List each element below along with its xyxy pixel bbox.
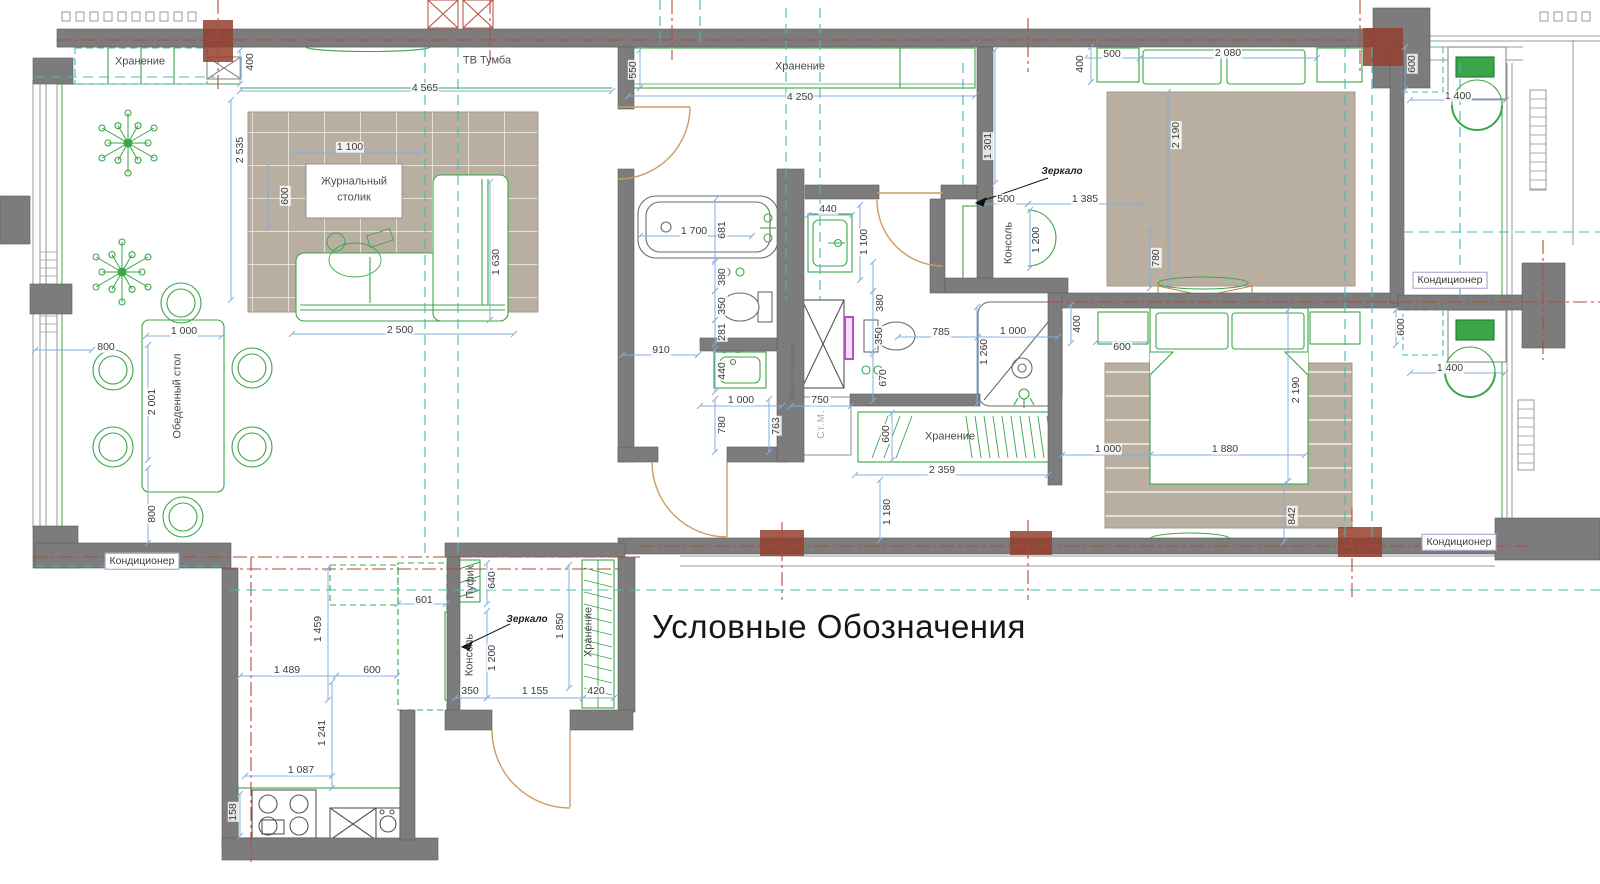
ac-label: Кондиционер: [1413, 272, 1488, 289]
dimension-label: 670: [878, 368, 889, 388]
dimension-label: 785: [931, 327, 951, 338]
dimension-label: 500: [1102, 49, 1122, 60]
room-label: Хранение: [115, 57, 165, 68]
dimension-label: 1 000: [999, 326, 1027, 337]
room-label: Пуфик: [466, 565, 477, 598]
dimension-label: 750: [810, 395, 830, 406]
room-label: Консоль: [465, 634, 476, 676]
dimension-label: 500: [996, 194, 1016, 205]
dimension-label: 1 385: [1071, 194, 1099, 205]
dimension-label: 910: [651, 345, 671, 356]
room-label: Зеркало: [1041, 167, 1082, 177]
dimension-label: 4 565: [411, 83, 439, 94]
dimension-label: 1 400: [1444, 91, 1472, 102]
legend-title: Условные Обозначения: [652, 608, 1026, 646]
dimension-label: 1 489: [273, 665, 301, 676]
dimension-label: 1 400: [1436, 363, 1464, 374]
room-label: столик: [337, 193, 371, 204]
dimension-label: 1 301: [983, 132, 994, 160]
room-label: Зеркало: [506, 615, 547, 625]
dimension-label: 600: [1112, 342, 1132, 353]
dimension-label: 1 155: [521, 686, 549, 697]
room-label: Журнальный: [321, 177, 387, 188]
dimension-label: 281: [717, 322, 728, 342]
dimension-label: 1 000: [170, 326, 198, 337]
dimension-label: 601: [414, 595, 434, 606]
dimension-label: 400: [1072, 314, 1083, 334]
dimension-label: 1 087: [287, 765, 315, 776]
dimension-label: 600: [280, 186, 291, 206]
labels-layer: Хранение400ТВ Тумба4 5652 5351 100600Жур…: [0, 0, 1600, 884]
dimension-label: 440: [717, 361, 728, 381]
dimension-label: 681: [717, 220, 728, 240]
dimension-label: 1 000: [1094, 444, 1122, 455]
dimension-label: 600: [362, 665, 382, 676]
dimension-label: 780: [717, 415, 728, 435]
dimension-label: 2 080: [1214, 48, 1242, 59]
dimension-label: 158: [228, 802, 239, 822]
ac-label: Кондиционер: [105, 553, 180, 570]
dimension-label: 2 359: [928, 465, 956, 476]
dimension-label: 1 100: [859, 228, 870, 256]
dimension-label: 2 190: [1171, 121, 1182, 149]
dimension-label: 2 535: [235, 136, 246, 164]
floor-plan-canvas: Хранение400ТВ Тумба4 5652 5351 100600Жур…: [0, 0, 1600, 884]
dimension-label: 1 180: [882, 498, 893, 526]
dimension-label: 440: [818, 204, 838, 215]
dimension-label: 800: [96, 342, 116, 353]
dimension-label: 400: [1075, 54, 1086, 74]
dimension-label: 4 250: [786, 92, 814, 103]
dimension-label: 1 000: [727, 395, 755, 406]
dimension-label: 1 100: [336, 142, 364, 153]
dimension-label: 640: [487, 570, 498, 590]
dimension-label: 800: [147, 504, 158, 524]
dimension-label: 780: [1151, 248, 1162, 268]
dimension-label: 600: [1407, 54, 1418, 74]
dimension-label: 1 700: [680, 226, 708, 237]
dimension-label: 1 880: [1211, 444, 1239, 455]
dimension-label: 2 190: [1291, 376, 1302, 404]
dimension-label: 350: [874, 326, 885, 346]
dimension-label: 550: [628, 60, 639, 80]
dimension-label: 1 630: [491, 248, 502, 276]
dimension-label: 350: [460, 686, 480, 697]
room-label: Хранение: [584, 607, 595, 657]
room-label: Хранение: [925, 432, 975, 443]
dimension-label: 1 459: [313, 615, 324, 643]
dimension-label: 1 200: [487, 644, 498, 672]
room-label: Хранение: [775, 62, 825, 73]
dimension-label: 1 260: [979, 338, 990, 366]
dimension-label: 1 850: [555, 612, 566, 640]
dimension-label: 380: [717, 267, 728, 287]
dimension-label: 2 001: [147, 388, 158, 416]
ac-label: Кондиционер: [1422, 534, 1497, 551]
dimension-label: 763: [771, 416, 782, 436]
room-label: Обеденный стол: [173, 353, 184, 438]
dimension-label: 350: [717, 296, 728, 316]
dimension-label: 2 500: [386, 325, 414, 336]
room-label: ТВ Тумба: [463, 56, 511, 67]
dimension-label: 1 200: [1031, 226, 1042, 254]
dimension-label: 420: [586, 686, 606, 697]
washing-machine-label: Ст.М.: [817, 408, 827, 440]
dimension-label: 600: [1396, 317, 1407, 337]
dimension-label: 380: [875, 293, 886, 313]
dimension-label: 842: [1287, 506, 1298, 526]
niche-label: Ниша с полками: [788, 342, 796, 401]
room-label: Консоль: [1004, 222, 1015, 264]
dimension-label: 1 241: [317, 719, 328, 747]
dimension-label: 400: [245, 52, 256, 72]
dimension-label: 600: [881, 424, 892, 444]
